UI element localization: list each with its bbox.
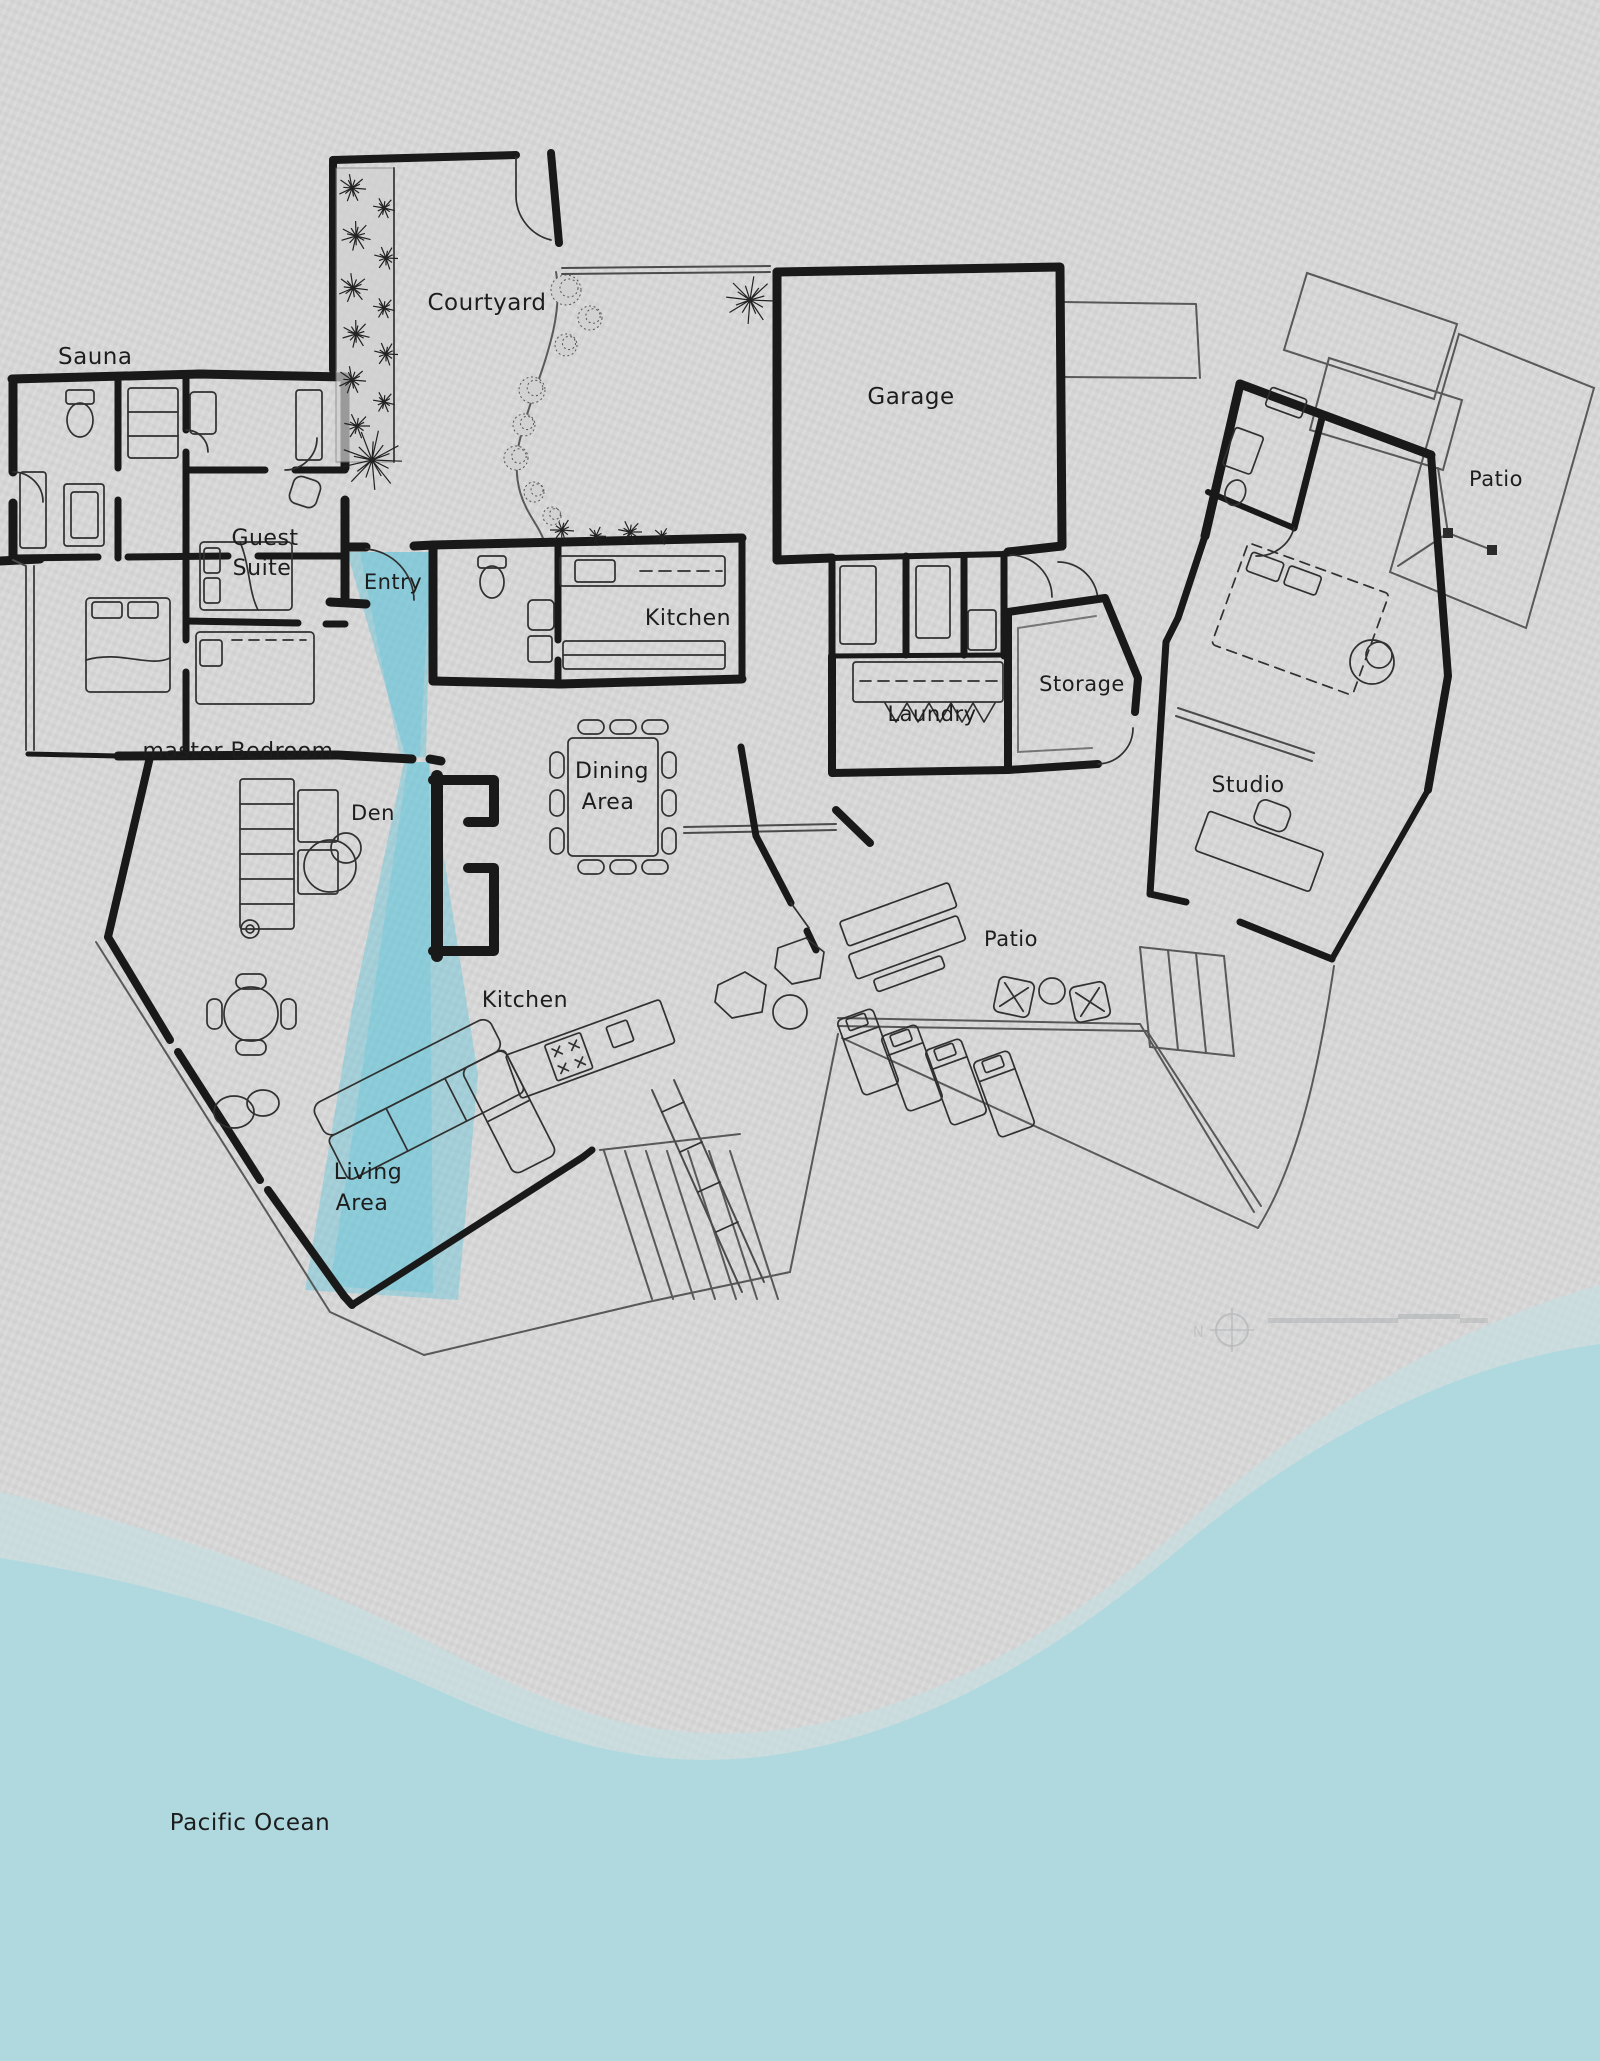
label-garage: Garage: [867, 384, 954, 410]
beach-stairs: [600, 1134, 778, 1299]
shrub-icon: [550, 509, 561, 520]
deck-edge-shore2: [648, 1034, 838, 1302]
mudroom-lockers: [840, 566, 996, 650]
plant-icon: [726, 276, 774, 324]
label-den: Den: [351, 801, 395, 825]
fireplace: [433, 776, 494, 956]
rail-post: [1487, 545, 1497, 555]
shrub-icon: [586, 309, 600, 323]
label-dining-2: Area: [582, 790, 635, 815]
shrub-icon: [520, 416, 533, 429]
bathroom-fixtures-sauna: [13, 388, 208, 548]
shrub-icon: [512, 449, 526, 463]
ocean-water: [0, 1344, 1600, 2061]
garage-walls: [777, 267, 1062, 560]
label-sauna: Sauna: [58, 344, 132, 370]
label-pacific-ocean: Pacific Ocean: [170, 1810, 330, 1836]
floor-plan-sketch: N: [0, 0, 1600, 2061]
shrub-icon: [560, 279, 578, 297]
label-patio-ne: Patio: [1469, 467, 1523, 491]
floor-plan-page: N: [0, 0, 1600, 2061]
shrub-icon: [531, 484, 543, 496]
patio-edge-inner: [838, 1018, 1254, 1212]
patio-edge-outer: [842, 1038, 1258, 1228]
compass: N: [1193, 1308, 1254, 1352]
shrub-icon: [562, 336, 575, 349]
compass-north-label: N: [1193, 1323, 1204, 1341]
ne-connector: [1064, 302, 1200, 378]
pouf-hex: [715, 938, 824, 1029]
label-storage: Storage: [1039, 672, 1125, 696]
laundry-walls: [832, 612, 1008, 773]
label-laundry: Laundry: [887, 702, 976, 726]
shrub-icon: [527, 380, 543, 396]
ocean-shore: [0, 1285, 1600, 2061]
label-studio: Studio: [1211, 773, 1284, 798]
scale-bar: [1268, 1314, 1488, 1323]
courtyard-walls: [333, 153, 770, 462]
label-living-2: Area: [336, 1191, 389, 1216]
furniture: [13, 380, 1394, 1292]
label-entry: Entry: [364, 570, 422, 594]
den-furniture: [240, 779, 361, 938]
label-living-1: Living: [334, 1160, 402, 1185]
label-dining-1: Dining: [575, 759, 649, 784]
label-master-bedroom: master Bedroom: [142, 739, 333, 764]
label-guest-1: Guest: [231, 526, 298, 551]
patio-edge-return: [1258, 966, 1334, 1228]
studio-walls: [1150, 384, 1448, 959]
patio-armchairs: [993, 976, 1112, 1024]
outdoor-dining: [836, 882, 975, 997]
studio-stairs: [1140, 947, 1234, 1056]
label-kitchen-upper: Kitchen: [645, 606, 731, 631]
stream: [305, 552, 478, 1300]
label-patio-mid: Patio: [984, 927, 1038, 951]
deck-edge-shore: [424, 1302, 648, 1355]
rail-post: [1443, 528, 1453, 538]
label-kitchen-lower: Kitchen: [482, 988, 568, 1013]
label-courtyard: Courtyard: [427, 290, 546, 316]
label-guest-2: Suite: [233, 556, 292, 581]
hall-south-walls: [684, 747, 870, 950]
breakfast-table-set: [207, 974, 296, 1055]
ne-terrace-1: [1284, 273, 1457, 399]
studio-furniture: [1176, 380, 1394, 892]
